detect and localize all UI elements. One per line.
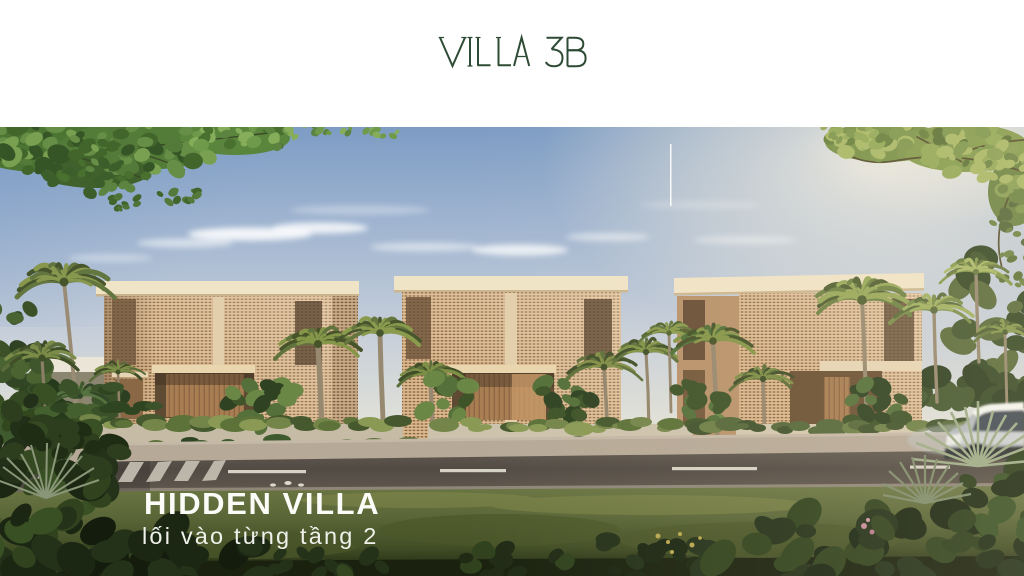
- svg-text:HIDDEN VILLA: HIDDEN VILLA: [144, 486, 380, 521]
- svg-text:lối vào từng tầng 2: lối vào từng tầng 2: [142, 523, 379, 549]
